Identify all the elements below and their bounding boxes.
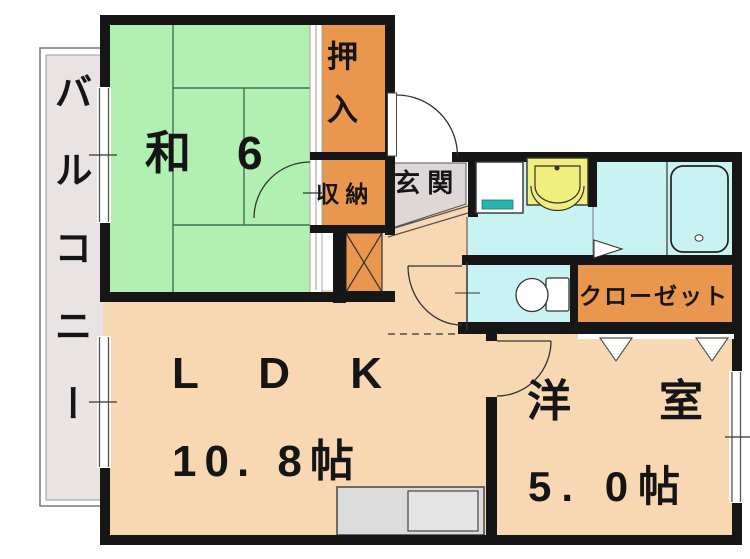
washbasin: [527, 158, 588, 210]
entrance-door-leaf: [388, 93, 397, 156]
ldk-label: L D K: [172, 352, 406, 396]
kitchen-counter: [337, 487, 484, 535]
pipe-space-x-box: [346, 233, 382, 292]
yoshitsu-label: 洋 室: [527, 380, 725, 424]
genkan-label: 玄 関: [394, 170, 453, 196]
balcony-label: バルコニー: [50, 72, 88, 462]
wall-left-lower: [100, 467, 110, 545]
kitchen-sink: [408, 491, 478, 531]
wall-washitsu-bottom: [100, 292, 346, 302]
wall-yoshitsu-divider-top: [486, 322, 497, 341]
wall-bath-divider: [588, 152, 597, 207]
oshiire-label: 押入: [324, 40, 355, 146]
entrance-door-arc: [397, 95, 458, 156]
wall-top: [100, 15, 395, 25]
wall-right-lower: [732, 502, 742, 545]
drain: [695, 235, 703, 241]
wall-left-mid: [100, 222, 110, 302]
faucet-dot: [555, 166, 560, 171]
wall-toilet-closet-divider: [570, 262, 578, 332]
yoshitsu-size-label: 5. 0帖: [528, 466, 690, 508]
wall-xbox-bottom: [333, 291, 395, 302]
floor-plan: バルコニー 押入 和 6 収 納 玄 関 クローゼット L D K 10. 8帖…: [0, 0, 750, 559]
room-bath: [590, 160, 734, 257]
wall-shuno-bottom: [310, 225, 395, 233]
wall-toilet-closet-bottom: [458, 322, 742, 334]
shuno-label: 収 納: [316, 183, 368, 206]
washing-machine-pan: [476, 162, 523, 213]
closet-label: クローゼット: [579, 285, 729, 308]
wall-oshiire-divider: [310, 152, 395, 160]
toilet: [516, 278, 569, 312]
wall-yoshitsu-divider-bottom: [486, 397, 497, 535]
washitsu-label: 和 6: [145, 130, 263, 176]
wall-left-upper: [100, 15, 110, 90]
wall-bottom: [100, 535, 742, 545]
wall-washroom-bottom: [462, 255, 742, 265]
ldk-size-label: 10. 8帖: [172, 440, 362, 484]
